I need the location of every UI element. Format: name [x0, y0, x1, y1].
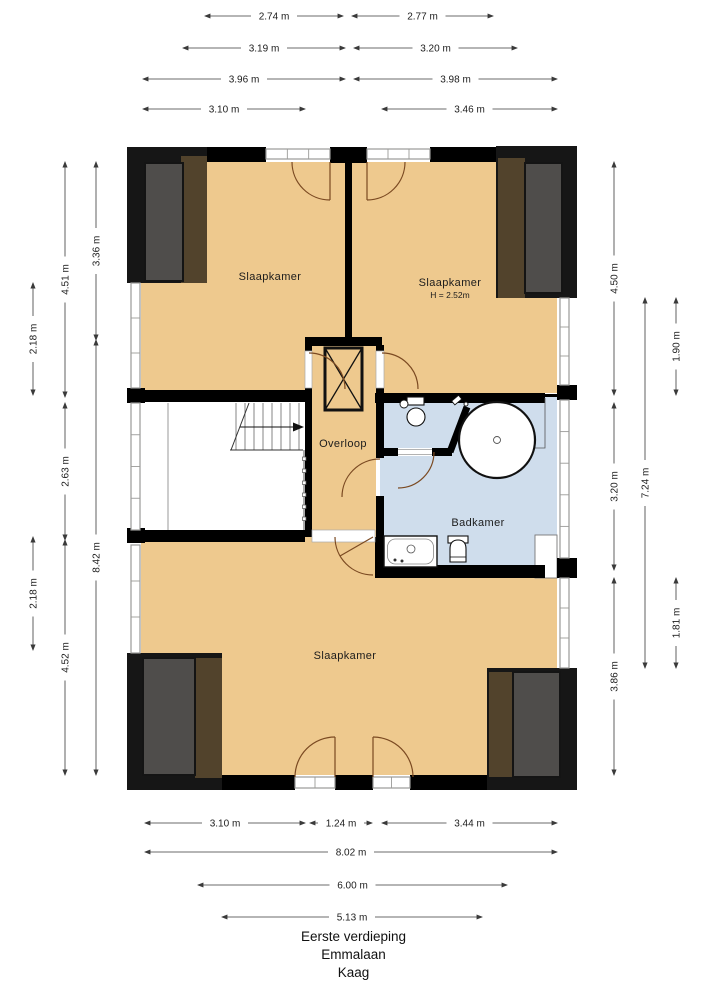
footer-city: Kaag: [0, 964, 707, 982]
dormer-bottom-left: [127, 653, 222, 790]
room-label-bedroom-top-left: Slaapkamer: [239, 271, 302, 283]
washbasin-knob: [400, 400, 408, 408]
dimension-label: 6.00 m: [337, 881, 368, 892]
dimension-label: 4.51 m: [61, 264, 72, 295]
footer-street: Emmalaan: [0, 946, 707, 964]
footer-floor-name: Eerste verdieping: [0, 928, 707, 946]
dimension-bottom: 3.10 m: [145, 817, 305, 830]
dimension-left: 2.18 m: [27, 283, 40, 395]
dimension-label: 4.50 m: [610, 263, 621, 294]
dimension-top: 3.20 m: [354, 42, 517, 55]
dimension-left: 3.36 m: [90, 162, 103, 340]
dimension-label: 2.63 m: [61, 456, 72, 487]
plan-footer: Eerste verdieping Emmalaan Kaag: [0, 928, 707, 982]
room-label-bedroom-bottom: Slaapkamer: [314, 650, 377, 662]
dimension-label: 3.86 m: [610, 661, 621, 692]
dimension-label: 4.52 m: [61, 642, 72, 673]
dimension-left: 8.42 m: [90, 340, 103, 775]
dimension-left: 2.63 m: [59, 403, 72, 540]
bathtub: [384, 536, 437, 567]
dimension-right: 4.50 m: [608, 162, 621, 395]
bath-tap-knob: [464, 402, 468, 406]
dimension-label: 3.20 m: [610, 471, 621, 502]
window: [560, 400, 569, 558]
window: [295, 777, 335, 788]
dimension-label: 3.10 m: [210, 819, 241, 830]
window: [131, 283, 140, 388]
dimension-label: 3.36 m: [92, 236, 103, 267]
dimension-bottom: 3.44 m: [382, 817, 557, 830]
dormer-top-left: [127, 147, 207, 283]
room-label-bedroom-top-right: Slaapkamer: [419, 277, 482, 289]
dimension-bottom: 1.24 m: [310, 817, 372, 830]
window: [131, 403, 140, 530]
dimension-right: 7.24 m: [639, 298, 652, 668]
dimension-label: 3.10 m: [209, 105, 240, 116]
dimension-label: 3.46 m: [454, 105, 485, 116]
dimension-label: 7.24 m: [641, 468, 652, 499]
window: [373, 777, 410, 788]
room-label-landing: Overloop: [319, 438, 367, 450]
stairwell-void: [141, 403, 305, 530]
dimension-top: 3.98 m: [354, 73, 557, 86]
dimension-label: 3.96 m: [229, 75, 260, 86]
dimension-label: 1.81 m: [672, 608, 683, 639]
dimension-label: 3.19 m: [249, 44, 280, 55]
dimension-label: 2.74 m: [259, 12, 290, 23]
dimension-right: 3.86 m: [608, 578, 621, 775]
dimension-top: 3.10 m: [143, 103, 305, 116]
dimension-bottom: 8.02 m: [145, 846, 557, 859]
dimension-left: 2.18 m: [27, 537, 40, 650]
dimension-label: 3.44 m: [454, 819, 485, 830]
bath-drain: [494, 437, 501, 444]
room-height-note: H = 2.52m: [430, 290, 469, 300]
dimension-label: 2.18 m: [29, 324, 40, 355]
room-label-bathroom: Badkamer: [451, 517, 504, 529]
window: [560, 578, 569, 668]
dimension-top: 2.77 m: [352, 10, 493, 23]
dimension-right: 1.90 m: [670, 298, 683, 395]
washbasin-shelf: [407, 397, 424, 405]
window: [266, 149, 330, 159]
dimension-label: 2.18 m: [29, 578, 40, 609]
dimension-left: 4.51 m: [59, 162, 72, 397]
dimension-top: 2.74 m: [205, 10, 343, 23]
dimension-label: 3.20 m: [420, 44, 451, 55]
dimension-label: 1.90 m: [672, 331, 683, 362]
dimension-label: 8.02 m: [336, 848, 367, 859]
floorplan-svg: Slaapkamer Slaapkamer H = 2.52m Overloop…: [0, 0, 707, 1000]
dimension-right: 3.20 m: [608, 403, 621, 570]
dimension-left: 4.52 m: [59, 540, 72, 775]
toilet-bowl: [450, 540, 466, 562]
dimension-bottom: 5.13 m: [222, 911, 482, 924]
dimension-right: 1.81 m: [670, 578, 683, 668]
dormer-bottom-right: [487, 668, 577, 790]
dormer-top-right: [496, 146, 577, 298]
dimension-label: 5.13 m: [337, 913, 368, 924]
dimension-bottom: 6.00 m: [198, 879, 507, 892]
dimension-label: 3.98 m: [440, 75, 471, 86]
window: [560, 298, 569, 385]
washbasin-bowl: [407, 408, 425, 426]
dimension-label: 1.24 m: [326, 819, 357, 830]
window: [367, 149, 430, 159]
dimension-label: 8.42 m: [92, 542, 103, 573]
dimension-top: 3.96 m: [143, 73, 345, 86]
dimension-label: 2.77 m: [407, 12, 438, 23]
dimension-top: 3.46 m: [382, 103, 557, 116]
dimension-top: 3.19 m: [183, 42, 345, 55]
window: [131, 545, 140, 653]
